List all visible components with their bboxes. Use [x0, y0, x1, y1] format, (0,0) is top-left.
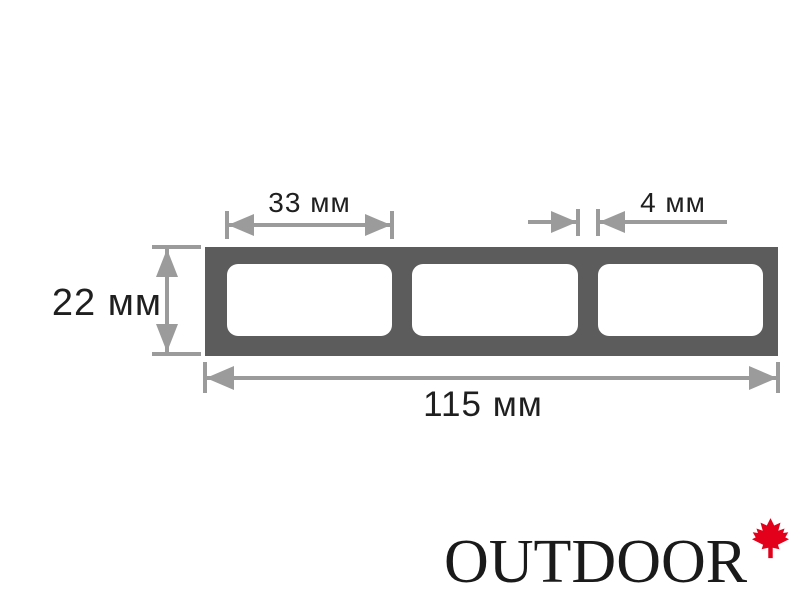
maple-leaf-icon: [752, 518, 789, 559]
dimension-label-profile-height: 22 мм: [0, 283, 162, 325]
hollow-chamber-1: [227, 264, 392, 336]
product-dimension-diagram: 33 мм 4 мм 22 мм 115 мм OUTDOOR: [0, 0, 800, 600]
hollow-chamber-3: [598, 264, 763, 336]
dimension-ticks: [578, 209, 598, 236]
arrowhead-down-icon: [156, 324, 178, 352]
arrowhead-right-icon: [749, 366, 777, 390]
profile-cross-section: [205, 247, 778, 356]
brand-logo-text: OUTDOOR: [444, 531, 747, 593]
dimension-label-chamber-width: 33 мм: [227, 188, 392, 219]
arrowhead-right-icon: [551, 211, 577, 233]
hollow-chamber-2: [412, 264, 578, 336]
arrowhead-left-icon: [206, 366, 234, 390]
dimension-label-wall-thickness: 4 мм: [597, 188, 749, 219]
dimension-label-total-width: 115 мм: [333, 386, 633, 425]
arrowhead-up-icon: [156, 249, 178, 277]
maple-leaf-shape: [752, 518, 789, 558]
